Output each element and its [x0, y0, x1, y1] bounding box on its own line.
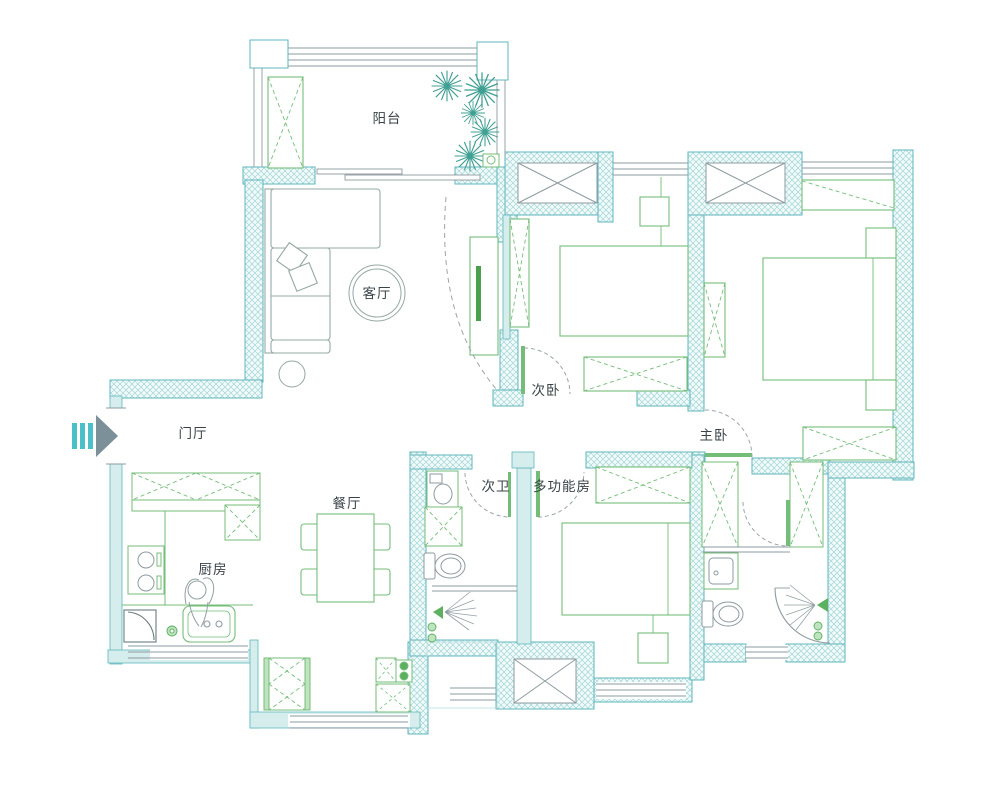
washbasin-icon — [427, 471, 458, 510]
shaft-column-icon — [706, 163, 785, 203]
wardrobe — [510, 219, 529, 327]
wall-segment — [700, 644, 746, 662]
room-label-balcony: 阳台 — [373, 111, 402, 127]
wardrobe — [596, 467, 690, 503]
kitchen-contents — [122, 473, 260, 642]
window — [613, 163, 688, 175]
balcony-right-railing — [497, 80, 505, 156]
bed — [763, 258, 896, 380]
wardrobe — [702, 462, 738, 547]
room-label-secondary-bathroom: 次卫 — [482, 479, 511, 495]
shower-tray — [425, 507, 462, 546]
shower-head-icon — [433, 592, 477, 630]
floor-drain-icon — [167, 626, 177, 636]
secondary-bathroom-contents — [424, 471, 517, 642]
window — [288, 714, 410, 728]
tv-stand — [638, 633, 668, 663]
wardrobe — [584, 357, 687, 391]
window — [128, 644, 248, 660]
window — [802, 162, 893, 174]
dining-table — [317, 514, 374, 602]
cabinet — [264, 658, 310, 710]
washbasin-icon — [704, 553, 738, 589]
floor-plan-drawing: 阳台 客厅 门厅 餐厅 厨房 次卧 主卧 次卫 多功能房 — [0, 0, 1000, 800]
toilet-icon — [702, 601, 743, 627]
tv-cabinet — [470, 237, 498, 355]
side-table — [279, 361, 305, 387]
faucet-knob-icon — [428, 623, 436, 642]
kitchen-sink — [183, 606, 235, 642]
shower-partition — [432, 586, 517, 591]
nightstand — [640, 197, 669, 226]
wall-segment — [637, 390, 690, 406]
bed — [560, 246, 688, 336]
faucet-knob-icon — [814, 622, 822, 640]
wall-segment — [828, 462, 914, 478]
room-label-master-bedroom: 主卧 — [700, 428, 729, 444]
wardrobe — [802, 180, 894, 210]
window — [596, 682, 686, 699]
wall-segment — [598, 152, 613, 222]
floor-plan-canvas: 阳台 客厅 门厅 餐厅 厨房 次卧 主卧 次卫 多功能房 — [0, 0, 1000, 800]
tv-icon — [476, 266, 481, 321]
hall-cabinet — [132, 473, 260, 540]
bath-partition — [703, 547, 790, 552]
stove-icon — [128, 546, 164, 594]
plant-pot-icon — [483, 154, 499, 167]
shaft-column-icon — [514, 659, 576, 703]
nightstand — [866, 228, 896, 258]
cabinet — [376, 658, 396, 682]
wall-segment — [586, 452, 692, 468]
wardrobe — [790, 462, 823, 547]
room-label-multi-function: 多功能房 — [533, 478, 591, 495]
wall-segment — [688, 215, 704, 411]
balcony-top-railing — [288, 48, 477, 66]
wall-segment — [786, 644, 845, 662]
multi-function-contents — [562, 467, 690, 663]
dining-set — [301, 514, 390, 602]
wall-segment — [512, 452, 534, 468]
wall-segment — [110, 380, 262, 398]
toilet-icon — [424, 553, 465, 579]
wardrobe — [803, 427, 896, 460]
balcony-column — [250, 40, 288, 68]
window — [745, 645, 788, 660]
master-bedroom-contents — [704, 180, 896, 460]
wall-segment — [410, 452, 426, 644]
wall-segment — [493, 390, 523, 406]
corner-unit — [124, 610, 156, 642]
shaft-column-icon — [518, 163, 597, 203]
wardrobe — [704, 283, 725, 357]
balcony-cabinet — [268, 77, 303, 168]
door — [743, 500, 790, 546]
cabinet — [376, 684, 410, 712]
wall-segment — [828, 478, 845, 662]
wall-segment — [503, 215, 510, 339]
room-label-living-room: 客厅 — [363, 285, 392, 302]
wall-segment — [410, 455, 472, 469]
room-label-entry-hall: 门厅 — [179, 426, 208, 442]
room-label-kitchen: 厨房 — [199, 562, 228, 578]
water-heater-icon — [396, 660, 412, 682]
wall-segment — [517, 468, 531, 644]
balcony-left-railing — [254, 68, 262, 167]
bed — [562, 523, 690, 615]
nightstand — [866, 380, 896, 410]
shaft-side-lines — [450, 688, 496, 700]
room-label-dining-room: 餐厅 — [333, 496, 362, 512]
wall-segment — [245, 180, 263, 382]
utility-bay-contents — [264, 658, 412, 712]
room-label-secondary-bedroom: 次卧 — [532, 383, 561, 399]
master-bathroom-contents — [702, 462, 830, 643]
